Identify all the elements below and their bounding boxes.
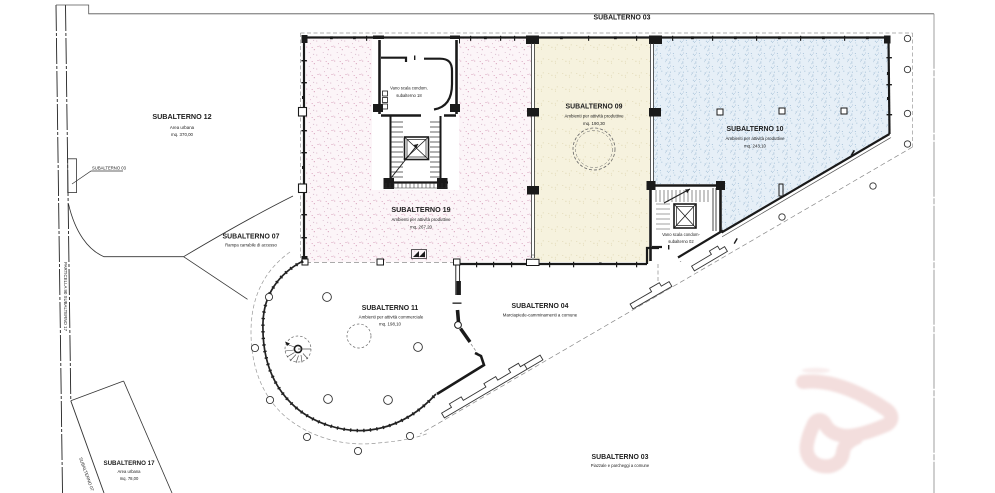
svg-text:SUBALTERNO 11: SUBALTERNO 11 bbox=[362, 305, 419, 312]
svg-text:PARTICELLA 90 SUBALTERNO 17: PARTICELLA 90 SUBALTERNO 17 bbox=[63, 262, 68, 332]
svg-text:Ambienti per attività commerci: Ambienti per attività commerciale bbox=[359, 315, 424, 320]
svg-text:mq. 190,30: mq. 190,30 bbox=[583, 121, 606, 126]
svg-text:Rampa carrabile di accesso: Rampa carrabile di accesso bbox=[225, 243, 277, 248]
svg-text:mq. 370,00: mq. 370,00 bbox=[171, 132, 194, 137]
svg-text:Ambienti per attività produtti: Ambienti per attività produttive bbox=[564, 114, 624, 119]
svg-text:SUBALTERNO 07: SUBALTERNO 07 bbox=[223, 234, 280, 241]
svg-text:SUBALTERNO 04: SUBALTERNO 04 bbox=[512, 303, 569, 310]
svg-text:Piazzale e parcheggi a comune: Piazzale e parcheggi a comune bbox=[591, 463, 650, 468]
svg-text:SUBALTERNO 03: SUBALTERNO 03 bbox=[594, 15, 651, 22]
svg-text:Ambienti per attività produtti: Ambienti per attività produttive bbox=[725, 136, 785, 141]
svg-text:SUBALTERNO 03: SUBALTERNO 03 bbox=[92, 166, 127, 171]
svg-text:SUBALTERNO 10: SUBALTERNO 10 bbox=[727, 126, 784, 133]
svg-text:Ambienti per attività produtti: Ambienti per attività produttive bbox=[391, 217, 451, 222]
svg-text:mq. 243,10: mq. 243,10 bbox=[744, 144, 767, 149]
svg-text:SUBALTERNO 19: SUBALTERNO 19 bbox=[391, 205, 450, 214]
svg-text:Vano scala condom-: Vano scala condom- bbox=[662, 232, 700, 237]
svg-text:mq. 198,10: mq. 198,10 bbox=[379, 322, 402, 327]
svg-text:Area urbana: Area urbana bbox=[170, 125, 195, 130]
svg-text:subalterno 18: subalterno 18 bbox=[396, 93, 422, 98]
svg-text:SUBALTERNO 12: SUBALTERNO 12 bbox=[152, 112, 211, 121]
svg-text:SUBALTERNO 09: SUBALTERNO 09 bbox=[566, 104, 623, 111]
svg-text:mq. 78,00: mq. 78,00 bbox=[120, 476, 139, 481]
svg-text:mq. 267,20: mq. 267,20 bbox=[410, 225, 433, 230]
svg-text:SUBALTERNO 03: SUBALTERNO 03 bbox=[592, 454, 649, 461]
svg-text:Vano scala condom.: Vano scala condom. bbox=[390, 86, 428, 91]
svg-text:SUBALTERNO 17: SUBALTERNO 17 bbox=[103, 460, 155, 467]
svg-text:Marciapiede-camminamenti a com: Marciapiede-camminamenti a comune bbox=[503, 313, 578, 318]
svg-text:subalterno 02: subalterno 02 bbox=[668, 239, 694, 244]
svg-text:Area urbana: Area urbana bbox=[117, 469, 141, 474]
